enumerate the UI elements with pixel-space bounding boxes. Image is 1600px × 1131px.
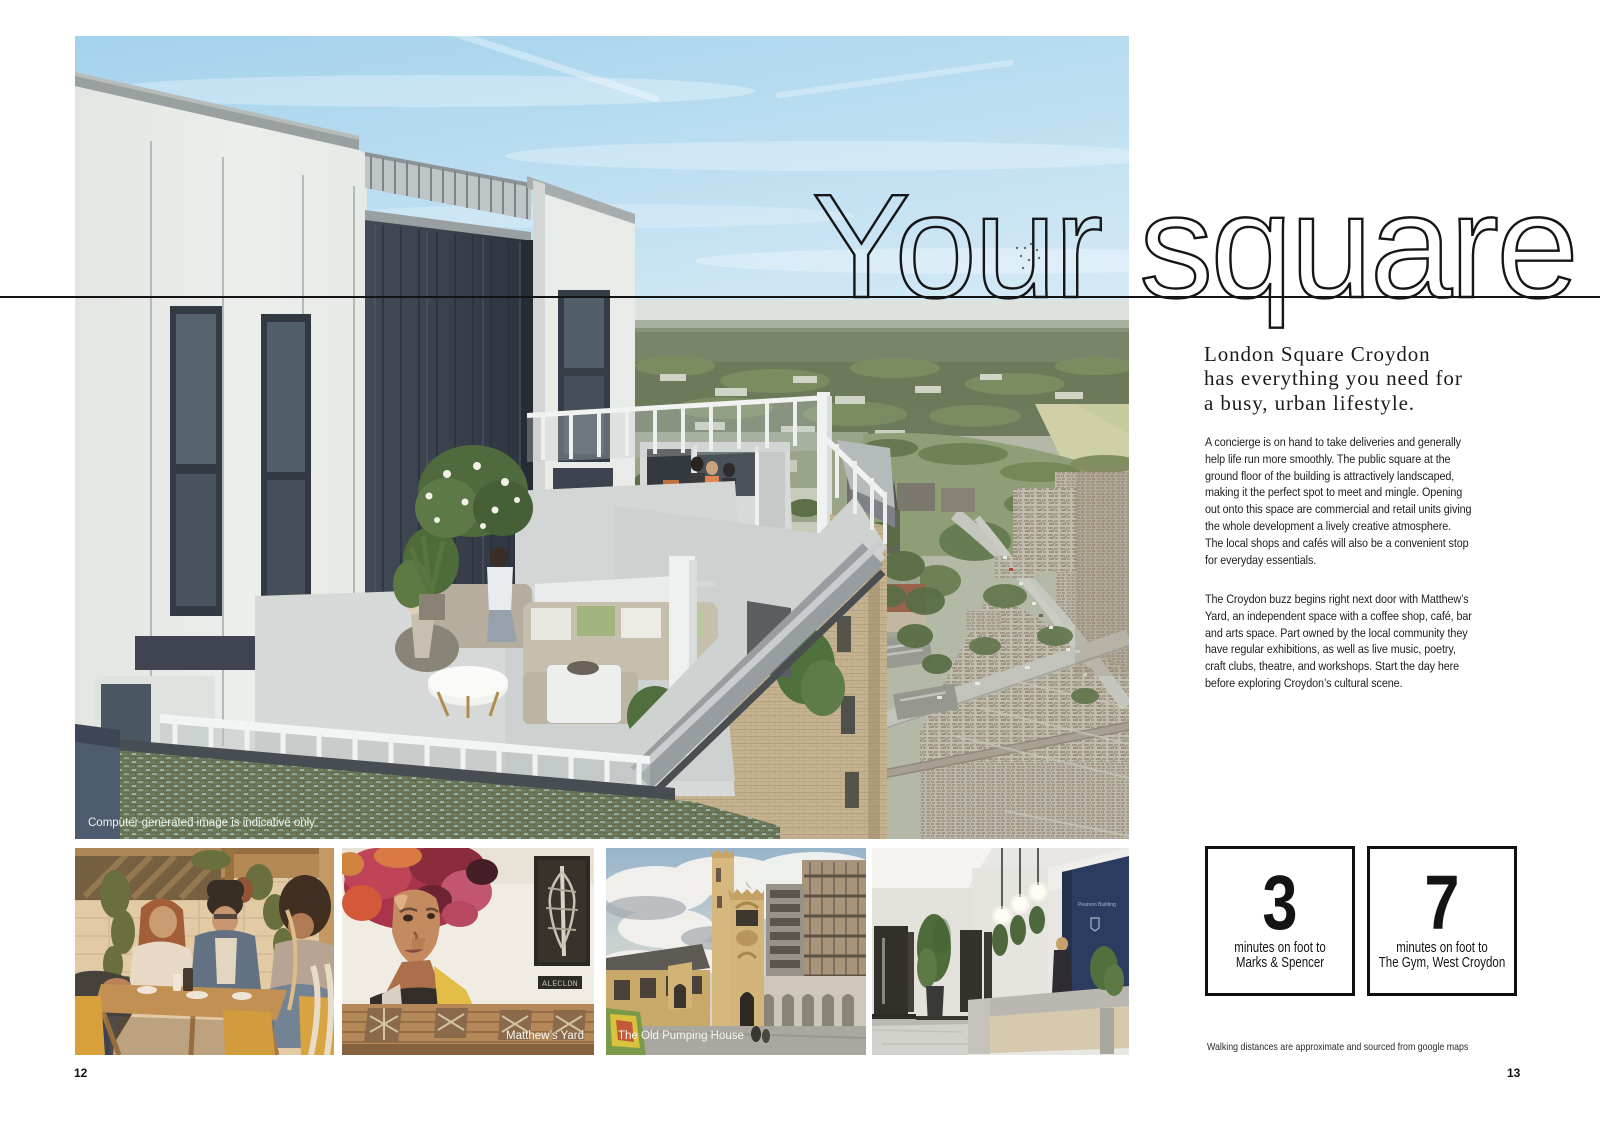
svg-text:Computer generated image is in: Computer generated image is indicative o… <box>88 817 315 829</box>
svg-text:ALECLDN: ALECLDN <box>542 979 578 989</box>
svg-text:Your square: Your square <box>812 164 1576 329</box>
svg-text:Pearson Building: Pearson Building <box>1078 902 1116 908</box>
